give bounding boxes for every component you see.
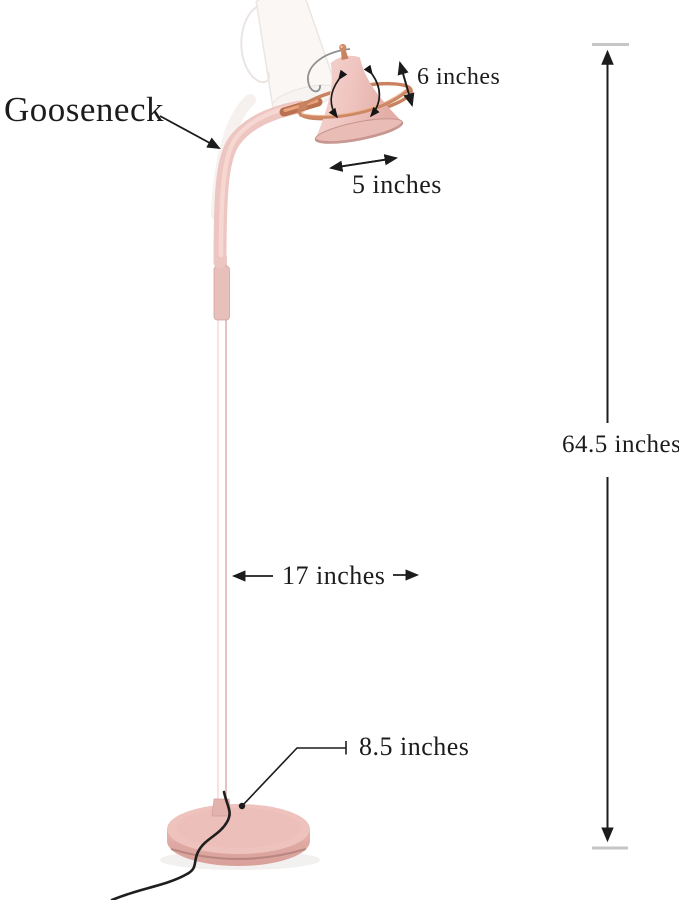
lamp-base (160, 799, 320, 870)
shade-width-arrow (331, 158, 396, 168)
shade-width-label: 5 inches (352, 170, 442, 200)
gooseneck-pointer-arrow (160, 116, 219, 148)
total-height-label: 64.5 inches (562, 431, 679, 459)
shade-depth-label: 6 inches (417, 64, 500, 91)
reach-label: 17 inches (282, 561, 385, 591)
base-diameter-label: 8.5 inches (359, 732, 469, 762)
base-leader-line (239, 741, 346, 809)
pole-sleeve-joint (214, 266, 230, 320)
product-dimension-image: Gooseneck 6 inches 5 inches 64.5 inches … (0, 0, 679, 900)
lamp-pole (214, 256, 230, 812)
gooseneck-label: Gooseneck (4, 90, 164, 130)
